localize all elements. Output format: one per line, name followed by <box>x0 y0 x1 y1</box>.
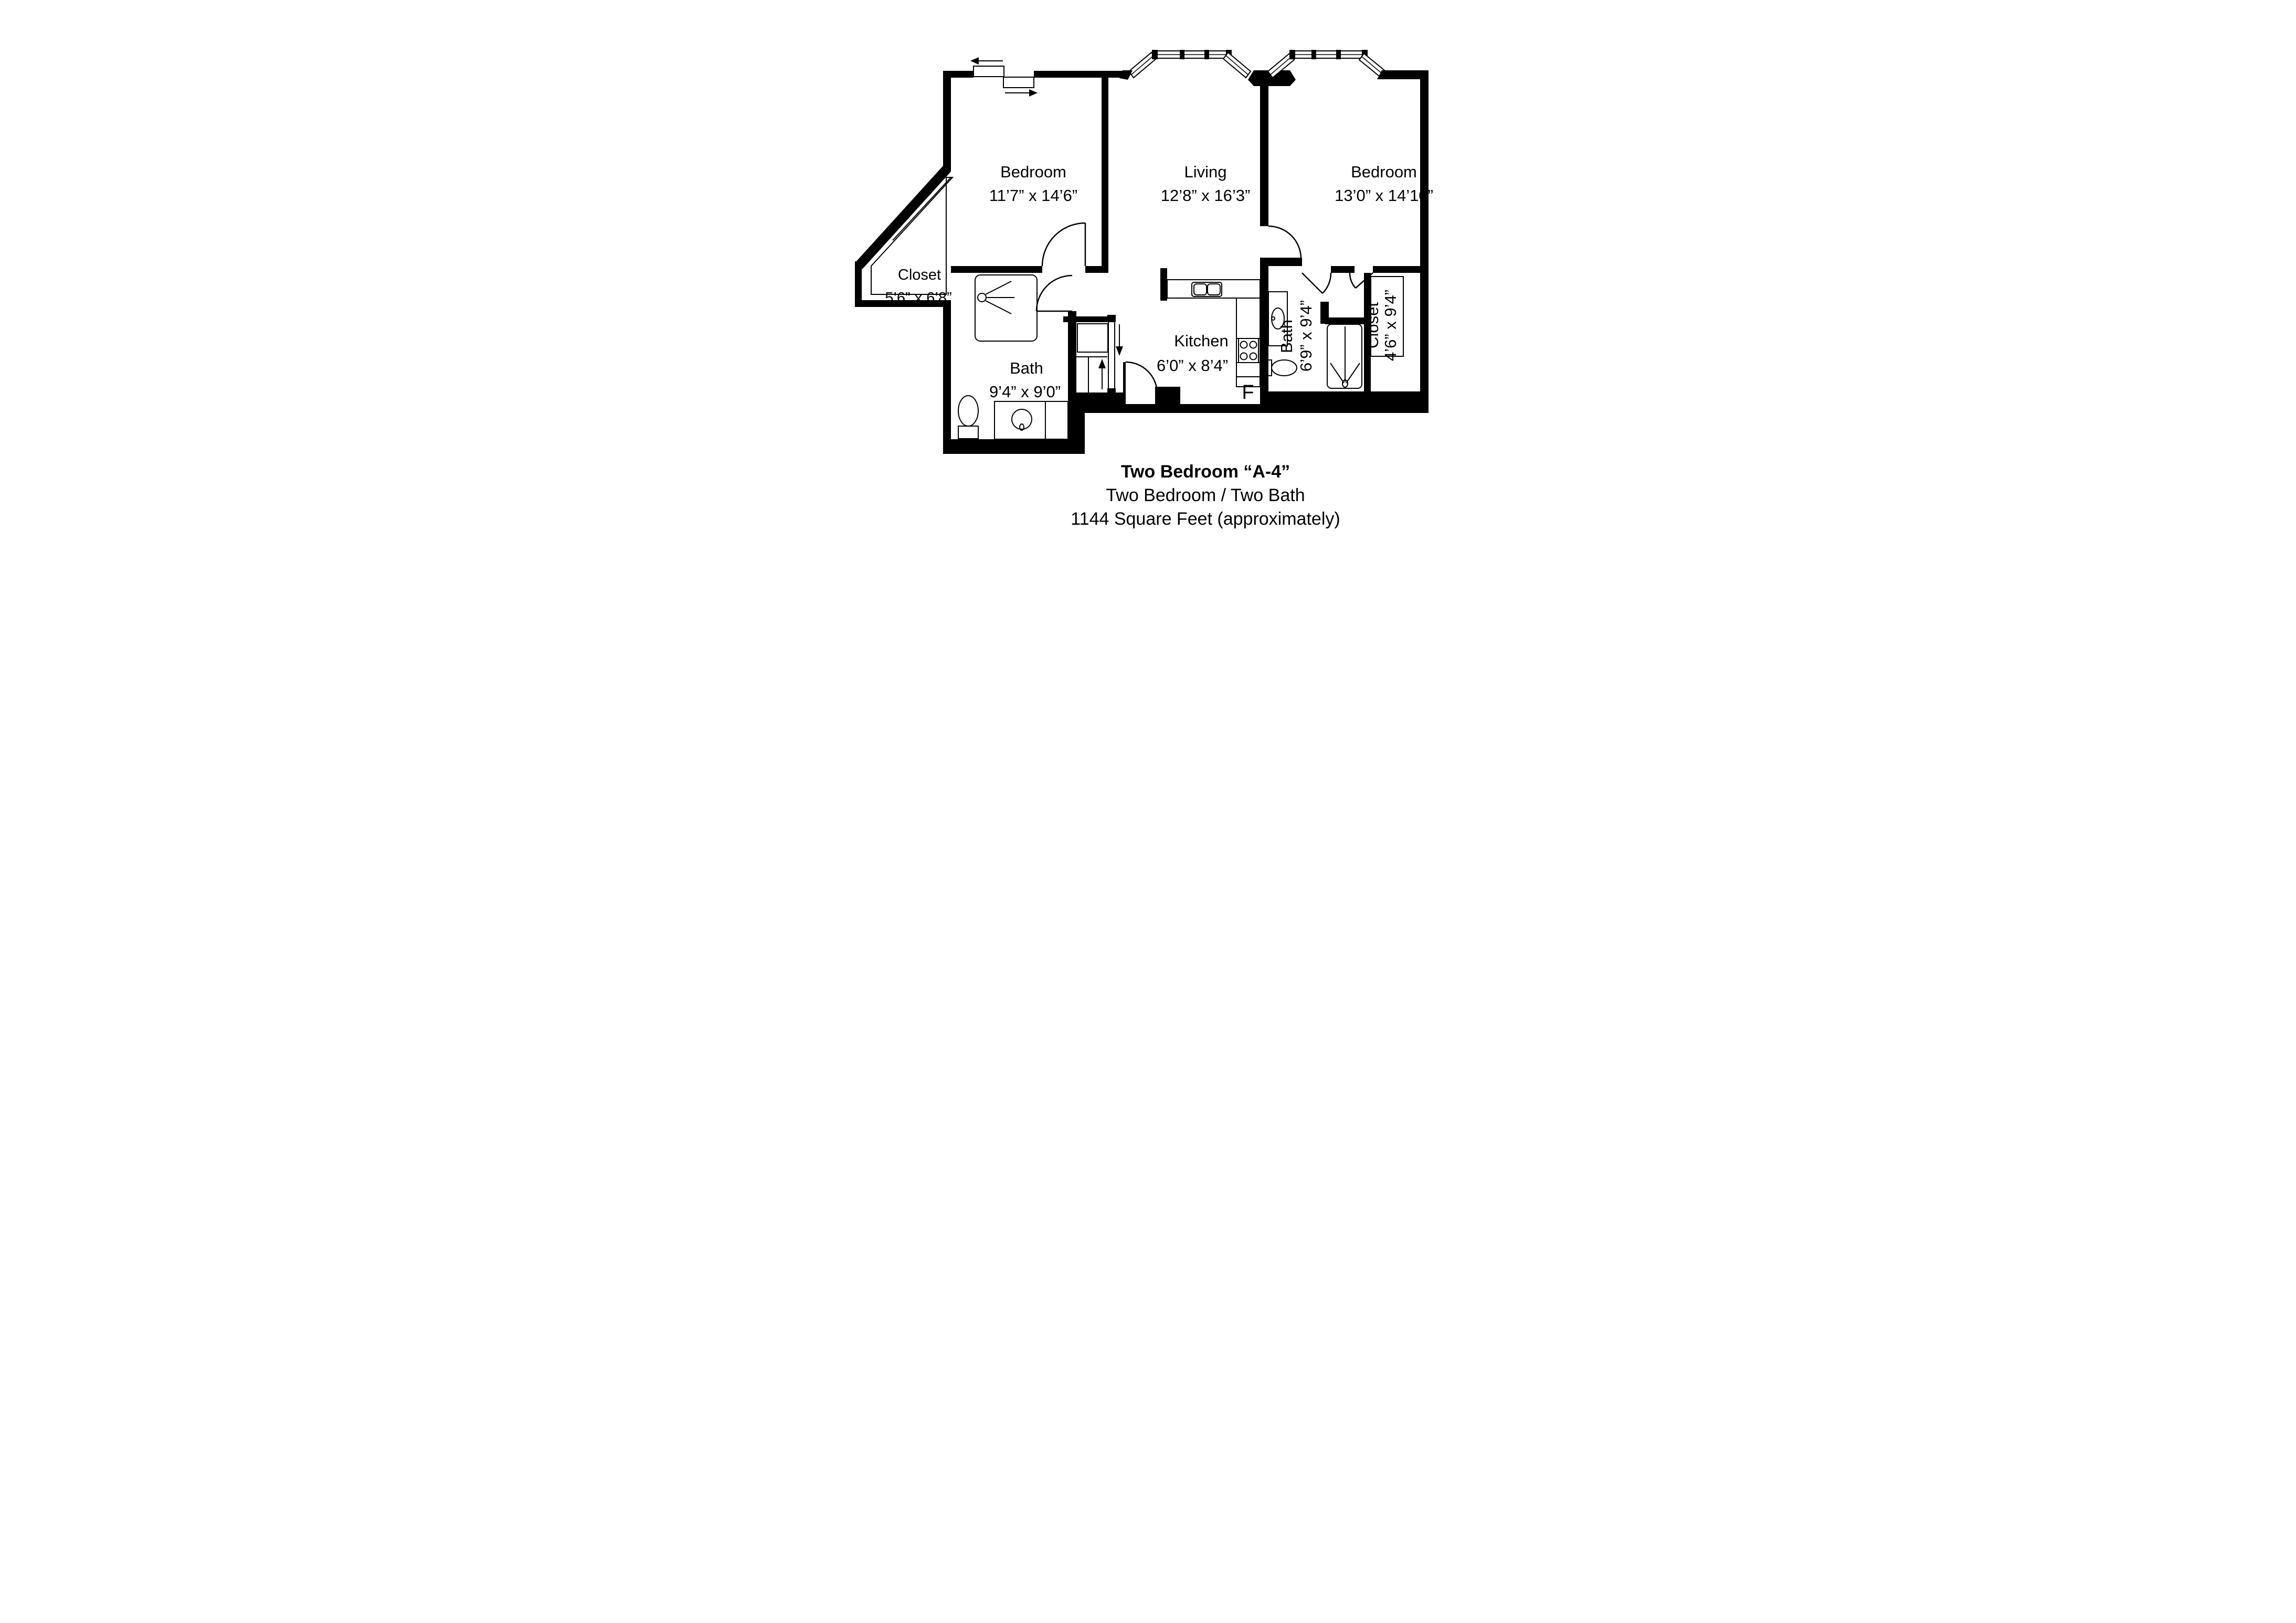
kitchen-sink-icon <box>1192 282 1222 296</box>
shelf-outline <box>1077 324 1108 352</box>
bath1-fixtures <box>958 275 1068 439</box>
fridge-label: F <box>1242 381 1254 404</box>
bath1-dims: 9’4” x 9’0” <box>989 383 1060 401</box>
bay-window-living <box>1119 50 1251 80</box>
slide-up-arrow-icon <box>1098 359 1106 389</box>
closet1-label: Closet <box>897 267 940 283</box>
floor-plan-drawing: Bedroom 11’7” x 14’6” Living 12’8” x 16’… <box>766 0 1531 541</box>
bedroom2-label: Bedroom <box>1351 163 1417 181</box>
slide-left-arrow-icon <box>970 57 1003 65</box>
kitchen-dims: 6’0” x 8’4” <box>1156 356 1228 375</box>
bedroom1-label: Bedroom <box>1000 163 1066 181</box>
counter-right <box>1236 298 1260 387</box>
toilet-icon <box>958 396 978 439</box>
plan-title: Two Bedroom “A-4” <box>1120 462 1289 482</box>
toilet-icon <box>1266 360 1297 376</box>
shower-head-icon <box>978 281 1014 314</box>
slide-down-arrow-icon <box>1116 324 1123 356</box>
living-dims: 12’8” x 16’3” <box>1160 186 1250 205</box>
bath1-label: Bath <box>1010 359 1043 377</box>
bedroom1-dims: 11’7” x 14’6” <box>989 186 1077 205</box>
stove-icon <box>1239 338 1258 363</box>
closet2-dims: 4’6” x 9’4” <box>1381 290 1400 361</box>
bath2-dims: 6’9” x 9’4” <box>1297 300 1315 372</box>
bedroom2-dims: 13’0” x 14’10” <box>1335 186 1433 205</box>
kitchen-label: Kitchen <box>1174 332 1228 350</box>
bathtub-icon <box>975 275 1037 341</box>
closet1-dims: 5’6” x 6’8” <box>885 290 951 306</box>
bath2-label: Bath <box>1277 320 1296 353</box>
shower-icon <box>1327 324 1362 388</box>
slide-right-arrow-icon <box>1005 89 1038 97</box>
living-label: Living <box>1184 163 1226 181</box>
plan-area: 1144 Square Feet (approximately) <box>1071 509 1340 529</box>
floor-plan-page: Bedroom 11’7” x 14’6” Living 12’8” x 16’… <box>766 0 1531 541</box>
hall-closet <box>1072 321 1123 393</box>
sliding-door <box>970 57 1038 97</box>
sink-vanity-icon <box>994 401 1068 439</box>
closet2-label: Closet <box>1363 302 1382 348</box>
plan-subtitle: Two Bedroom / Two Bath <box>1106 485 1305 505</box>
exterior-walls <box>855 70 1429 454</box>
